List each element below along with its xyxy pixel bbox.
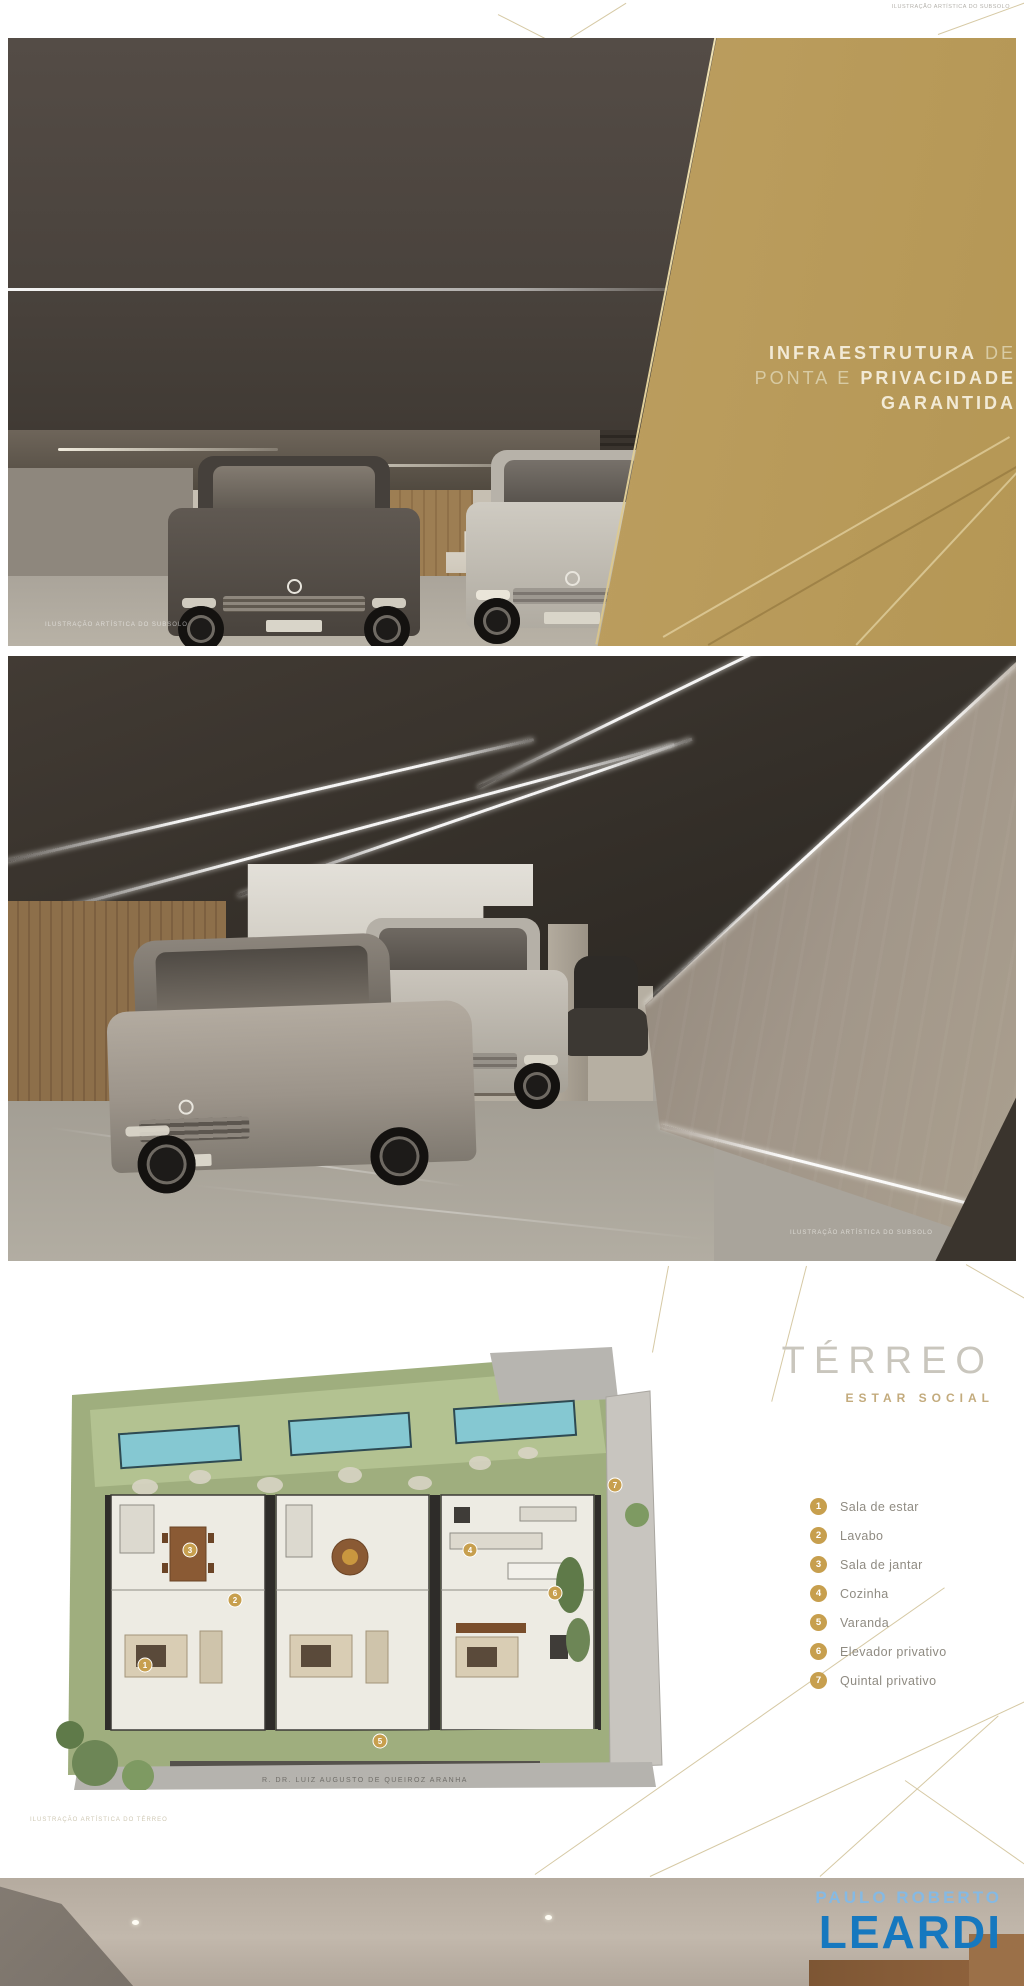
legend-number-badge: 2	[810, 1527, 827, 1544]
legend-item: 1Sala de estar	[810, 1498, 947, 1515]
garage-photo-2: ILUSTRAÇÃO ARTÍSTICA DO SUBSOLO	[8, 656, 1016, 1261]
headline-line-1: INFRAESTRUTURA DE	[596, 341, 1016, 366]
brand-name-text: LEARDI	[815, 1909, 1002, 1955]
garage-photo-1: INFRAESTRUTURA DE PONTA E PRIVACIDADE GA…	[8, 38, 1016, 646]
legend-label: Lavabo	[840, 1529, 883, 1543]
legend-number-badge: 5	[810, 1614, 827, 1631]
ceiling-light-dot	[132, 1920, 139, 1925]
svg-text:7: 7	[613, 1481, 618, 1490]
floorplan-title: TÉRREO	[782, 1340, 994, 1383]
legend-label: Quintal privativo	[840, 1674, 936, 1688]
unit-1	[111, 1495, 265, 1730]
artistic-illustration-caption: ILUSTRAÇÃO ARTÍSTICA DO SUBSOLO	[45, 622, 188, 628]
ceiling-light-dot	[545, 1915, 552, 1920]
legend-item: 6Elevador privativo	[810, 1643, 947, 1660]
svg-text:3: 3	[188, 1546, 193, 1555]
legend-item: 7Quintal privativo	[810, 1672, 947, 1689]
svg-text:5: 5	[378, 1737, 383, 1746]
legend-label: Elevador privativo	[840, 1645, 947, 1659]
floorplan-legend: 1Sala de estar 2Lavabo 3Sala de jantar 4…	[810, 1498, 947, 1701]
headline-line-3: GARANTIDA	[596, 391, 1016, 416]
car-wheel	[364, 606, 410, 646]
townhouse-units	[105, 1495, 601, 1730]
svg-text:1: 1	[143, 1661, 148, 1670]
car-windshield	[155, 945, 369, 1010]
legend-number-badge: 3	[810, 1556, 827, 1573]
slide1-headline: INFRAESTRUTURA DE PONTA E PRIVACIDADE GA…	[596, 341, 1016, 416]
decor-line	[820, 1716, 999, 1877]
legend-item: 4Cozinha	[810, 1585, 947, 1602]
leardi-brand-logo: PAULO ROBERTO LEARDI	[815, 1888, 1002, 1955]
car-wheel	[474, 598, 520, 644]
mercedes-star-icon	[287, 579, 302, 594]
car-wheel	[514, 1063, 560, 1109]
legend-item: 2Lavabo	[810, 1527, 947, 1544]
svg-text:4: 4	[468, 1546, 473, 1555]
legend-label: Cozinha	[840, 1587, 889, 1601]
unit-2	[276, 1495, 429, 1730]
legend-label: Sala de estar	[840, 1500, 919, 1514]
bronze-sedan-car	[104, 930, 477, 1188]
ceiling-light	[58, 448, 278, 451]
brand-top-text: PAULO ROBERTO	[815, 1888, 1002, 1908]
footer-photo: PAULO ROBERTO LEARDI	[0, 1878, 1024, 1986]
car-grille	[223, 596, 364, 612]
page: ILUSTRAÇÃO ARTÍSTICA DO SUBSOLO	[0, 0, 1024, 1986]
legend-item: 3Sala de jantar	[810, 1556, 947, 1573]
dark-car	[564, 956, 648, 1066]
legend-number-badge: 4	[810, 1585, 827, 1602]
legend-label: Sala de jantar	[840, 1558, 923, 1572]
street-name-label: R. DR. LUIZ AUGUSTO DE QUEIROZ ARANHA	[262, 1777, 468, 1784]
svg-text:2: 2	[233, 1596, 238, 1605]
decor-line	[905, 1780, 1024, 1873]
legend-number-badge: 7	[810, 1672, 827, 1689]
legend-label: Varanda	[840, 1616, 889, 1630]
license-plate	[266, 620, 322, 632]
car-body	[564, 1008, 648, 1056]
legend-item: 5Varanda	[810, 1614, 947, 1631]
svg-text:6: 6	[553, 1589, 558, 1598]
artistic-illustration-caption: ILUSTRAÇÃO ARTÍSTICA DO TÉRREO	[30, 1817, 168, 1823]
decor-line	[966, 1264, 1024, 1307]
legend-number-badge: 1	[810, 1498, 827, 1515]
floorplan-drawing: R. DR. LUIZ AUGUSTO DE QUEIROZ ARANHA 1 …	[50, 1335, 665, 1790]
mercedes-star-icon	[565, 571, 580, 586]
top-strip: ILUSTRAÇÃO ARTÍSTICA DO SUBSOLO	[0, 0, 1024, 38]
car-windshield	[213, 466, 374, 514]
legend-number-badge: 6	[810, 1643, 827, 1660]
dark-sedan-car	[168, 456, 420, 646]
headline-line-2: PONTA E PRIVACIDADE	[596, 366, 1016, 391]
floorplan-title-block: TÉRREO ESTAR SOCIAL	[782, 1340, 994, 1405]
artistic-illustration-caption: ILUSTRAÇÃO ARTÍSTICA DO SUBSOLO	[892, 4, 1010, 10]
decor-line	[650, 1694, 1024, 1877]
floorplan-subtitle: ESTAR SOCIAL	[782, 1391, 994, 1405]
car-windshield	[504, 460, 640, 508]
wall-light-strip	[8, 288, 734, 291]
license-plate	[544, 612, 600, 624]
artistic-illustration-caption: ILUSTRAÇÃO ARTÍSTICA DO SUBSOLO	[790, 1230, 933, 1236]
